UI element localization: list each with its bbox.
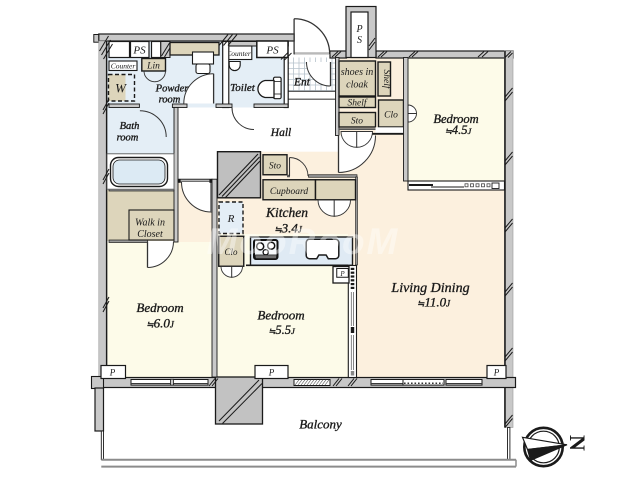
svg-text:N: N	[565, 435, 590, 451]
svg-text:P: P	[339, 270, 345, 278]
svg-text:Sto: Sto	[351, 116, 363, 126]
svg-text:Bedroom: Bedroom	[136, 300, 183, 315]
svg-text:Closet: Closet	[137, 229, 163, 240]
svg-text:Walk in: Walk in	[135, 218, 165, 229]
svg-text:Lin: Lin	[146, 62, 160, 72]
svg-text:Bedroom: Bedroom	[257, 308, 304, 323]
svg-text:≒4.5J: ≒4.5J	[445, 123, 473, 137]
svg-text:Powder: Powder	[155, 84, 190, 95]
svg-text:Kitchen: Kitchen	[265, 205, 308, 220]
svg-text:PS: PS	[265, 45, 279, 57]
svg-text:Counter: Counter	[111, 61, 136, 70]
svg-text:W: W	[115, 81, 127, 96]
svg-text:Shelf: Shelf	[348, 97, 368, 108]
svg-text:room: room	[159, 95, 181, 106]
svg-text:cloak: cloak	[346, 80, 368, 91]
svg-text:room: room	[117, 133, 139, 144]
svg-text:≒5.5J: ≒5.5J	[268, 323, 296, 337]
svg-text:P: P	[493, 368, 500, 378]
svg-text:Toilet: Toilet	[230, 82, 256, 94]
svg-text:Counter: Counter	[226, 49, 251, 58]
svg-text:Ent: Ent	[293, 77, 311, 89]
svg-text:S: S	[357, 35, 362, 46]
svg-text:Cupboard: Cupboard	[270, 187, 308, 197]
svg-text:Bath: Bath	[120, 121, 140, 132]
svg-text:Clo: Clo	[384, 111, 398, 121]
svg-text:MooRooM: MooRooM	[207, 221, 400, 262]
svg-text:Hall: Hall	[270, 127, 291, 139]
svg-text:PS: PS	[132, 45, 146, 57]
svg-text:P: P	[268, 368, 275, 378]
svg-text:Shelf: Shelf	[381, 70, 392, 90]
svg-text:Balcony: Balcony	[299, 417, 342, 432]
svg-text:P: P	[109, 368, 116, 378]
svg-text:Sto: Sto	[269, 162, 281, 172]
svg-text:shoes in: shoes in	[341, 67, 374, 78]
svg-text:P: P	[355, 24, 362, 35]
